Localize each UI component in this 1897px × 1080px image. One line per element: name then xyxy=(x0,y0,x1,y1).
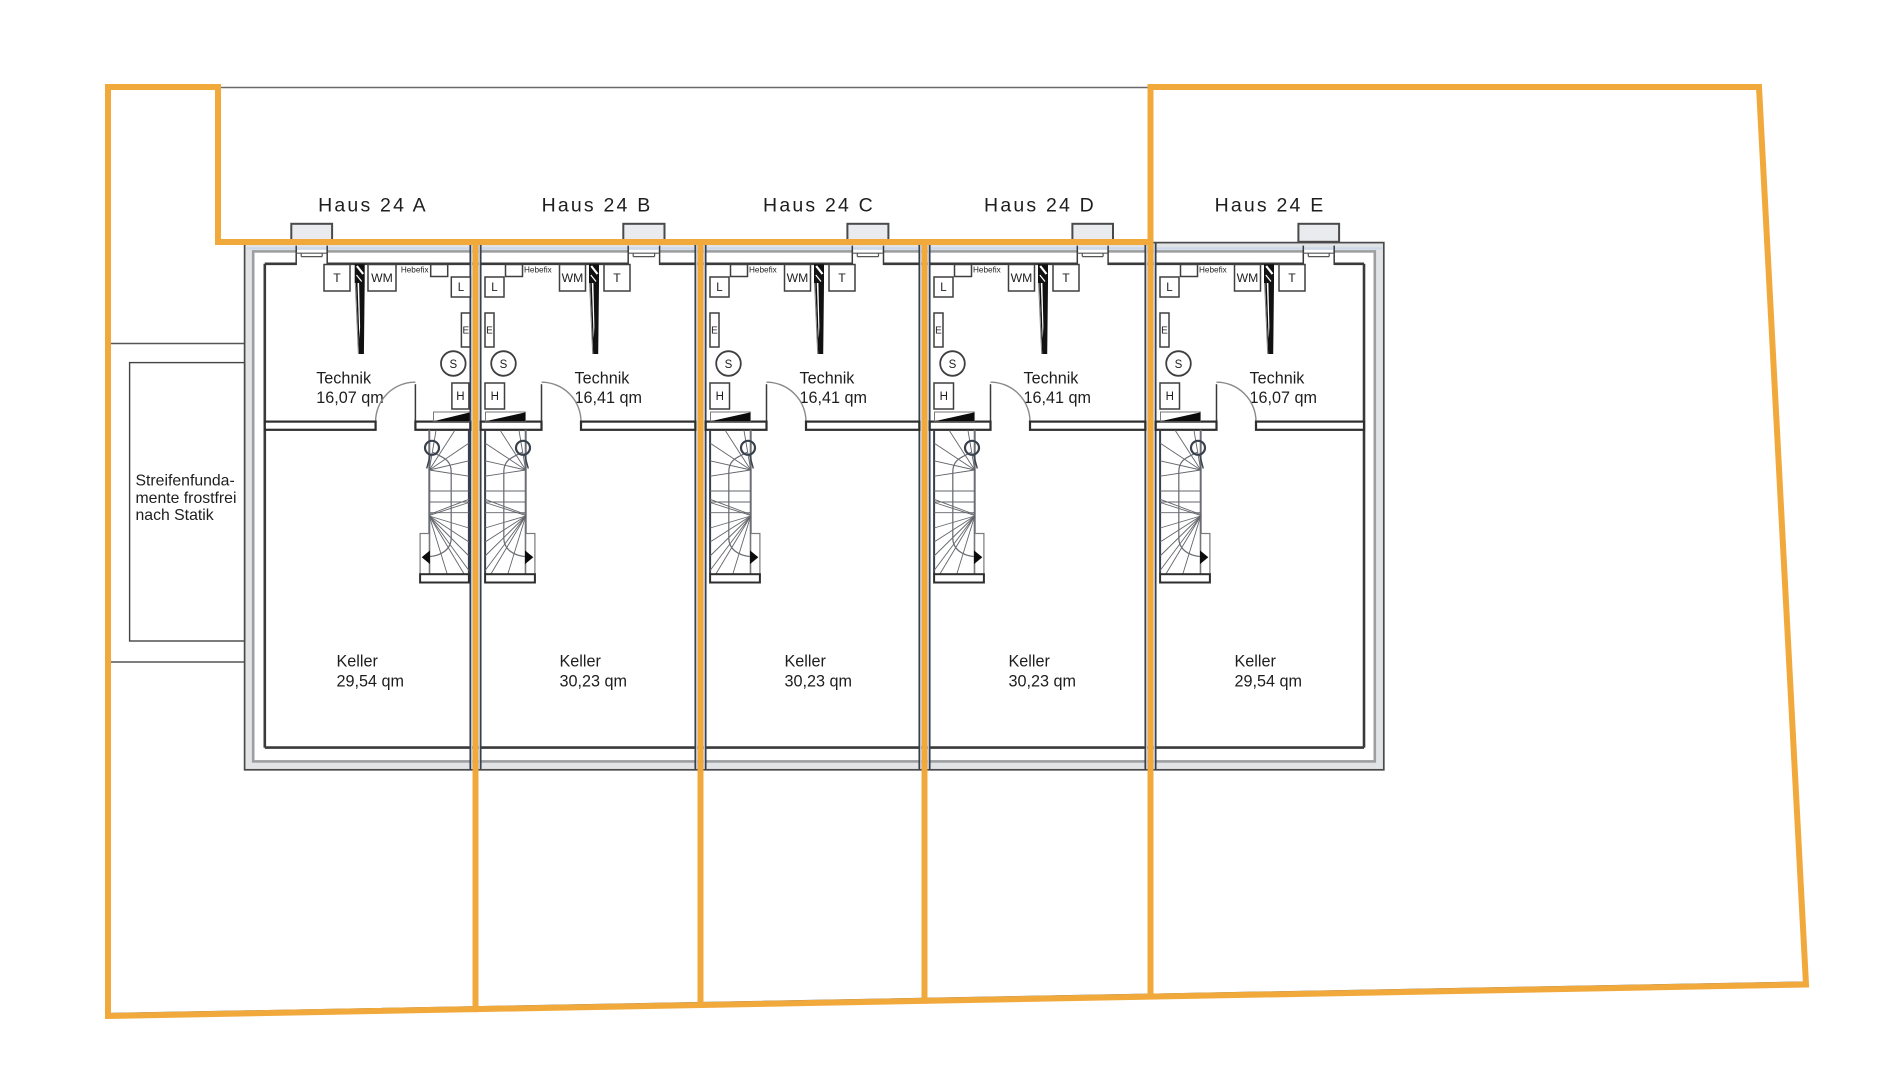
svg-text:T: T xyxy=(1062,271,1070,285)
svg-text:E: E xyxy=(1161,326,1168,337)
svg-text:Technik: Technik xyxy=(1024,369,1080,387)
svg-text:30,23 qm: 30,23 qm xyxy=(785,673,853,691)
svg-text:16,41 qm: 16,41 qm xyxy=(1024,389,1092,407)
svg-text:E: E xyxy=(935,326,942,337)
svg-text:WM: WM xyxy=(787,271,809,285)
svg-text:29,54 qm: 29,54 qm xyxy=(1235,673,1303,691)
svg-text:S: S xyxy=(1175,359,1183,371)
svg-text:S: S xyxy=(949,359,957,371)
svg-text:Hebefix: Hebefix xyxy=(973,265,1001,274)
svg-text:Haus 24 D: Haus 24 D xyxy=(984,195,1096,217)
svg-text:H: H xyxy=(940,391,948,403)
svg-text:H: H xyxy=(456,391,464,403)
svg-text:Keller: Keller xyxy=(1009,652,1051,670)
svg-text:WM: WM xyxy=(1011,271,1033,285)
svg-text:S: S xyxy=(500,359,508,371)
svg-text:mente frostfrei: mente frostfrei xyxy=(136,490,237,507)
svg-text:H: H xyxy=(716,391,724,403)
svg-text:Haus 24 A: Haus 24 A xyxy=(318,195,428,217)
svg-text:WM: WM xyxy=(562,271,584,285)
svg-text:16,07 qm: 16,07 qm xyxy=(1250,389,1318,407)
svg-text:E: E xyxy=(486,326,493,337)
svg-text:Streifenfunda-: Streifenfunda- xyxy=(136,473,235,490)
svg-text:29,54 qm: 29,54 qm xyxy=(337,673,405,691)
svg-text:E: E xyxy=(711,326,718,337)
svg-text:Haus 24 B: Haus 24 B xyxy=(542,195,653,217)
svg-text:Technik: Technik xyxy=(1250,369,1306,387)
svg-text:Keller: Keller xyxy=(337,652,379,670)
svg-text:Haus 24 C: Haus 24 C xyxy=(763,195,875,217)
svg-text:S: S xyxy=(449,359,457,371)
svg-text:E: E xyxy=(462,326,469,337)
svg-text:16,07 qm: 16,07 qm xyxy=(316,389,384,407)
svg-text:nach Statik: nach Statik xyxy=(136,507,214,524)
svg-text:Technik: Technik xyxy=(800,369,856,387)
svg-text:Technik: Technik xyxy=(316,369,372,387)
svg-text:L: L xyxy=(940,282,947,294)
svg-text:Technik: Technik xyxy=(575,369,631,387)
svg-text:L: L xyxy=(458,282,465,294)
svg-text:L: L xyxy=(1166,282,1173,294)
svg-text:H: H xyxy=(491,391,499,403)
svg-text:30,23 qm: 30,23 qm xyxy=(1009,673,1077,691)
svg-text:Hebefix: Hebefix xyxy=(749,265,777,274)
svg-text:16,41 qm: 16,41 qm xyxy=(800,389,868,407)
svg-text:T: T xyxy=(1288,271,1296,285)
svg-text:Hebefix: Hebefix xyxy=(1199,265,1227,274)
svg-text:T: T xyxy=(613,271,621,285)
svg-text:30,23 qm: 30,23 qm xyxy=(560,673,628,691)
svg-text:WM: WM xyxy=(371,271,393,285)
svg-text:L: L xyxy=(491,282,498,294)
svg-text:Haus 24 E: Haus 24 E xyxy=(1215,195,1326,217)
svg-text:T: T xyxy=(333,271,341,285)
svg-text:Keller: Keller xyxy=(1235,652,1277,670)
svg-text:T: T xyxy=(838,271,846,285)
svg-text:Keller: Keller xyxy=(560,652,602,670)
svg-text:Keller: Keller xyxy=(785,652,827,670)
svg-text:Hebefix: Hebefix xyxy=(524,265,552,274)
svg-text:S: S xyxy=(725,359,733,371)
svg-text:16,41 qm: 16,41 qm xyxy=(575,389,643,407)
svg-text:L: L xyxy=(716,282,723,294)
svg-text:Hebefix: Hebefix xyxy=(401,265,429,274)
svg-text:WM: WM xyxy=(1237,271,1259,285)
svg-text:H: H xyxy=(1166,391,1174,403)
